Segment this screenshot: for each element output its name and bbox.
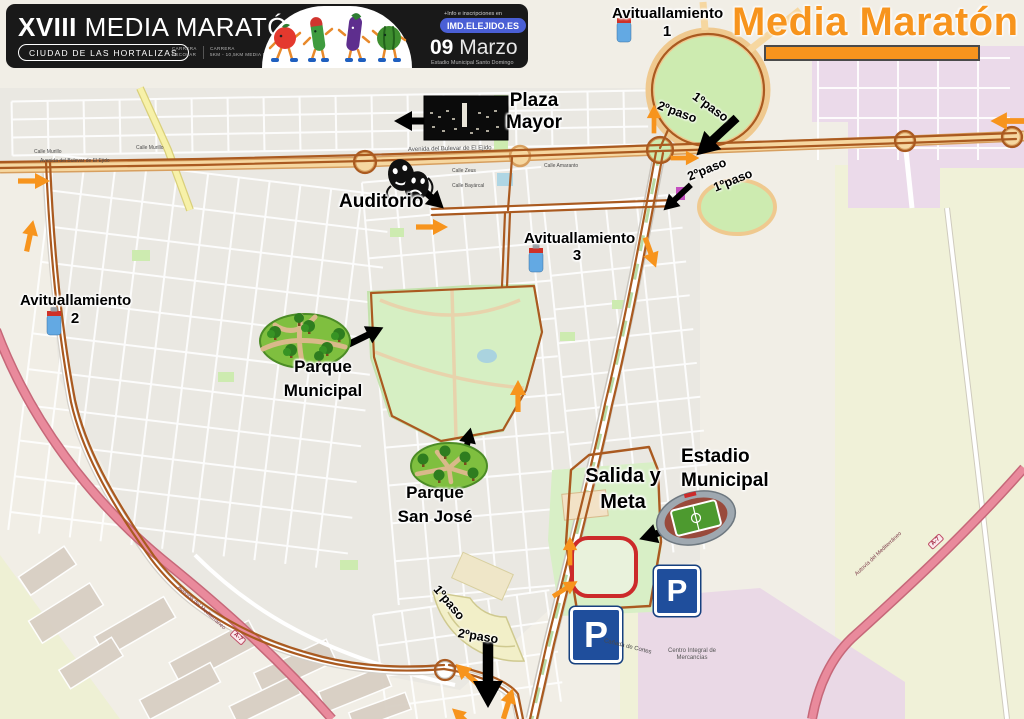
tomato-runner: [270, 24, 300, 62]
plaza-mayor-line2: Mayor: [498, 112, 570, 134]
street-label-murillo-2: Calle Murillo: [136, 145, 164, 151]
info-label: +Info e inscripciones en: [444, 11, 502, 17]
street-label-bayarcal: Calle Bayárcal: [452, 183, 484, 189]
plaza-mayor-line1: Plaza: [498, 90, 570, 112]
salida-meta-line1: Salida y: [570, 463, 676, 489]
edition-number: XVIII: [18, 12, 77, 42]
street-label-bulevar-west: Avenida del Bulevar de El Ejido: [40, 158, 110, 164]
eggplant-runner: [339, 12, 369, 62]
race-category-1-line2: ESCOLAR: [172, 52, 197, 58]
event-banner: XVIII MEDIA MARATÓN CIUDAD DE LAS HORTAL…: [6, 4, 528, 68]
aid-station-3-number: 3: [566, 247, 588, 264]
aid-station-1-number: 1: [656, 23, 678, 40]
event-date: 09 Marzo: [430, 36, 518, 60]
parque-san-jose-line1: Parque: [385, 481, 485, 505]
event-date-month: Marzo: [459, 36, 517, 59]
course-map: Avituallamiento 1 Avituallamiento 2 Avit…: [0, 0, 1024, 719]
race-category-1: CARRERA ESCOLAR: [172, 46, 197, 58]
auditorio-label: Auditorio: [339, 191, 423, 213]
parque-san-jose-line2: San José: [385, 505, 485, 529]
plaza-mayor-label: Plaza Mayor: [498, 90, 570, 134]
estadio-line1: Estadio: [681, 445, 769, 469]
water-bottle-icon-2: [47, 307, 61, 335]
estadio-municipal-label: Estadio Municipal: [681, 445, 769, 493]
tagline-pill: CIUDAD DE LAS HORTALIZAS: [18, 44, 189, 61]
running-vegetables-illustration: [262, 6, 412, 68]
map-title-underline: [764, 45, 980, 61]
mascots-dome: [262, 6, 412, 68]
parque-municipal-line1: Parque: [270, 355, 376, 379]
cucumber-runner: [304, 16, 332, 62]
salida-meta-line2: Meta: [570, 489, 676, 515]
plaza-mayor-photo: [424, 96, 508, 140]
stadium-track-outline: [572, 538, 636, 596]
parking-icon-1: P: [570, 607, 622, 663]
street-label-zeus: Calle Zeus: [452, 168, 476, 174]
event-venue: Estadio Municipal Santo Domingo: [431, 60, 514, 66]
watermelon-runner: [373, 26, 405, 62]
event-date-day: 09: [430, 36, 453, 59]
estadio-line2: Municipal: [681, 469, 769, 493]
aid-station-1-label: Avituallamiento: [612, 5, 723, 22]
parque-municipal-label: Parque Municipal: [270, 355, 376, 403]
street-label-murillo-1: Calle Murillo: [34, 149, 62, 155]
street-label-amaranto: Calle Amaranto: [544, 163, 578, 169]
map-title: Media Maratón: [732, 0, 1019, 45]
info-website-link[interactable]: IMD.ELEJIDO.ES: [440, 18, 526, 33]
aid-station-2-number: 2: [64, 310, 86, 327]
parking-icon-2: P: [654, 566, 700, 616]
salida-meta-label: Salida y Meta: [570, 463, 676, 515]
category-divider: [203, 46, 204, 59]
aid-station-2-label: Avituallamiento: [20, 292, 131, 309]
parque-san-jose-label: Parque San José: [385, 481, 485, 529]
aid-station-3-label: Avituallamiento: [524, 230, 635, 247]
street-label-centro-mercancias: Centro Integral de Mercancías: [658, 648, 726, 662]
water-bottle-icon-3: [529, 244, 543, 272]
parque-municipal-line2: Municipal: [270, 379, 376, 403]
